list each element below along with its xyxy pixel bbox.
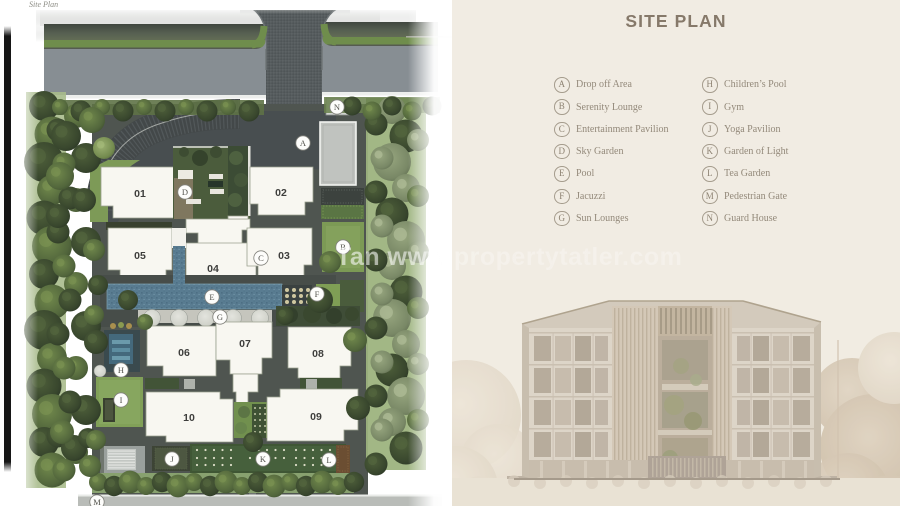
svg-text:08: 08 (312, 348, 324, 360)
svg-text:01: 01 (134, 188, 146, 200)
svg-text:L: L (326, 455, 331, 465)
svg-text:H: H (118, 365, 124, 375)
svg-text:E: E (209, 292, 214, 302)
svg-text:I: I (120, 395, 123, 405)
svg-text:M: M (93, 497, 101, 506)
svg-text:10: 10 (183, 412, 195, 424)
svg-text:A: A (300, 138, 307, 148)
svg-text:05: 05 (134, 250, 146, 262)
svg-text:N: N (334, 102, 340, 112)
svg-text:F: F (315, 289, 320, 299)
svg-text:06: 06 (178, 347, 190, 359)
svg-text:09: 09 (310, 411, 322, 423)
svg-text:C: C (258, 253, 264, 263)
svg-text:03: 03 (278, 250, 290, 262)
svg-text:02: 02 (275, 187, 287, 199)
svg-text:04: 04 (207, 263, 219, 275)
svg-text:G: G (217, 312, 223, 322)
svg-text:D: D (182, 187, 188, 197)
svg-text:K: K (260, 454, 267, 464)
svg-text:07: 07 (239, 338, 251, 350)
